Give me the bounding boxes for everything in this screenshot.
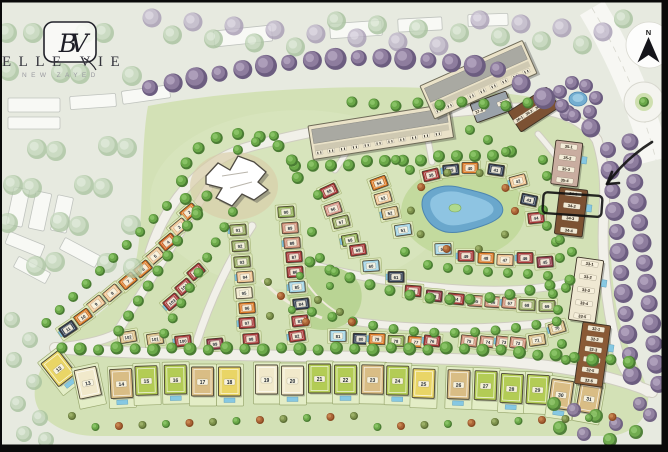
tree [413, 98, 424, 109]
tree [581, 119, 600, 138]
tree [22, 332, 38, 348]
tree [512, 74, 531, 93]
tree [143, 9, 162, 28]
tree [168, 313, 178, 323]
villa-plot-23: 23 [359, 362, 387, 404]
tree [476, 169, 484, 177]
screenshot-frame: 2345678910111051041031021011009998979695… [0, 0, 668, 452]
tree [542, 171, 552, 181]
tree [557, 339, 567, 349]
plot-47: 47 [494, 252, 516, 268]
tree [561, 355, 571, 365]
plot-92: 92 [229, 238, 251, 254]
tree [623, 356, 636, 369]
villa-plot-15: 15 [133, 363, 161, 406]
tree [468, 419, 476, 427]
tree [110, 342, 123, 355]
svg-text:14: 14 [118, 382, 124, 388]
tree [135, 227, 145, 237]
plot-95: 95 [233, 285, 255, 301]
tree [421, 421, 429, 429]
tree [74, 343, 87, 356]
tree [153, 266, 164, 277]
tree [618, 325, 637, 344]
tree [307, 227, 317, 237]
tree [542, 221, 552, 231]
svg-text:15: 15 [144, 379, 150, 385]
tree [266, 21, 285, 40]
tree [512, 15, 531, 34]
tree [368, 16, 387, 35]
tree [266, 312, 274, 320]
tree [26, 256, 46, 276]
tree [555, 235, 565, 245]
tree [548, 289, 558, 299]
tree [501, 147, 511, 157]
tree [543, 271, 553, 281]
plot-51: 51 [392, 221, 415, 239]
tree [117, 138, 137, 158]
tree [108, 253, 118, 263]
tree [330, 267, 340, 277]
tree [594, 23, 613, 42]
tree [440, 342, 453, 355]
tree [553, 421, 567, 435]
plot-68: 68 [516, 297, 538, 313]
tree [491, 326, 501, 336]
tree [23, 23, 43, 43]
logo-title: ELLE VIE [2, 54, 127, 70]
tree [423, 260, 433, 270]
tree [286, 155, 298, 167]
tree [256, 416, 264, 424]
tree [194, 268, 204, 278]
tree [642, 314, 661, 333]
faded-building [8, 98, 60, 112]
svg-text:80: 80 [359, 337, 365, 342]
svg-text:26: 26 [456, 383, 462, 389]
tree [307, 25, 326, 44]
tree [532, 32, 551, 51]
tree [313, 345, 324, 356]
svg-text:48: 48 [484, 256, 490, 261]
tree [172, 236, 183, 247]
tree [465, 294, 476, 305]
tree [41, 318, 51, 328]
tree [314, 296, 322, 304]
svg-text:78: 78 [394, 339, 400, 344]
tree [405, 165, 415, 175]
tree [303, 51, 322, 70]
tree [369, 99, 380, 110]
tree [277, 292, 285, 300]
tree [115, 422, 123, 430]
tree [327, 312, 337, 322]
tree [628, 193, 647, 212]
tree [162, 201, 172, 211]
tree [186, 419, 194, 427]
svg-text:101: 101 [151, 336, 159, 342]
tree [585, 414, 593, 422]
plot-59: 59 [347, 241, 370, 259]
tree [589, 91, 603, 105]
villa-plot-16: 16 [162, 362, 190, 404]
tree [269, 131, 279, 141]
tree [386, 343, 397, 354]
tree [445, 294, 456, 305]
tree [405, 290, 416, 301]
tree [443, 263, 453, 273]
tree [185, 67, 207, 89]
tree [513, 346, 526, 359]
plot-96: 96 [236, 300, 258, 316]
tree [180, 193, 192, 205]
tree [315, 253, 325, 263]
tree [255, 55, 277, 77]
tree [184, 343, 197, 356]
tree [74, 175, 94, 195]
tree [280, 415, 288, 423]
tree [553, 305, 563, 315]
tree [610, 243, 629, 262]
tree [55, 305, 65, 315]
tree [264, 278, 272, 286]
tree [122, 240, 132, 250]
tree [633, 397, 647, 411]
villa-plot-19: 19 [254, 362, 281, 404]
tree [631, 214, 648, 231]
tree [391, 155, 401, 165]
tree [204, 30, 223, 49]
tree [450, 24, 469, 43]
villa-plot-22: 22 [333, 362, 360, 404]
tree [303, 414, 311, 422]
villa-plot-26: 26 [445, 367, 473, 410]
tree [391, 101, 402, 112]
tree [385, 285, 396, 296]
plot-61: 61 [386, 270, 407, 285]
tree [479, 99, 490, 110]
tree [325, 48, 347, 70]
tree [643, 408, 657, 422]
faded-building [8, 117, 60, 129]
tree [613, 265, 629, 281]
svg-text:24: 24 [395, 379, 401, 385]
tree [394, 48, 416, 70]
tree [22, 178, 42, 198]
tree [10, 396, 26, 412]
tree [292, 172, 304, 184]
villa-plot-20: 20 [280, 363, 307, 405]
tree [397, 422, 405, 430]
tree [523, 269, 533, 279]
tree [16, 426, 32, 442]
svg-text:35-4: 35-4 [560, 177, 569, 183]
tree [143, 281, 154, 292]
tree [327, 413, 335, 421]
plot-85: 85 [286, 279, 308, 295]
pool [170, 396, 181, 401]
tree [123, 258, 143, 278]
tree [288, 306, 296, 314]
tree [415, 155, 427, 167]
tree [361, 155, 373, 167]
plot-87: 87 [283, 249, 305, 265]
tree [579, 79, 593, 93]
tree [567, 247, 577, 257]
tree [130, 344, 141, 355]
tree [368, 321, 378, 331]
tree [257, 344, 270, 357]
tree [181, 157, 193, 169]
svg-text:34-2: 34-2 [568, 203, 577, 209]
tree [491, 418, 499, 426]
tree [604, 183, 620, 199]
plot-39: 39 [440, 161, 462, 178]
tree [470, 327, 480, 337]
plot-91: 91 [227, 222, 249, 238]
tree [202, 191, 213, 202]
tree [220, 342, 233, 355]
tree [219, 222, 229, 232]
tree [400, 247, 410, 257]
tree [92, 423, 100, 431]
tree [457, 97, 468, 108]
tree [639, 97, 649, 107]
tree [367, 344, 380, 357]
villa-plot-17: 17 [190, 364, 217, 406]
tree [567, 109, 581, 123]
tree [483, 135, 493, 145]
tree [46, 141, 66, 161]
svg-text:46: 46 [523, 256, 528, 261]
tree [45, 252, 65, 272]
tree [82, 279, 92, 289]
svg-text:16: 16 [173, 378, 179, 384]
tree [350, 412, 358, 420]
tree [552, 317, 562, 327]
tree [442, 53, 461, 72]
tree [142, 80, 158, 96]
tree [326, 282, 334, 290]
tree [606, 354, 617, 365]
tree [430, 37, 449, 56]
tree [451, 150, 463, 162]
svg-text:28: 28 [509, 387, 515, 393]
svg-text:61: 61 [394, 275, 399, 280]
svg-text:35-2: 35-2 [563, 155, 572, 161]
tree [351, 50, 367, 66]
tree [225, 17, 244, 36]
tree [26, 374, 42, 390]
pool [601, 280, 607, 288]
pool [224, 398, 235, 403]
tree [423, 345, 434, 356]
plot-41: 41 [485, 161, 508, 179]
tree [444, 169, 452, 177]
tree [93, 178, 113, 198]
tree [538, 155, 548, 165]
plot-93: 93 [231, 254, 253, 270]
tree [93, 345, 104, 356]
svg-text:25: 25 [421, 382, 427, 388]
tree [636, 255, 653, 272]
pool [608, 344, 614, 352]
plot-94: 94 [234, 269, 256, 285]
tree [444, 420, 452, 428]
tree [407, 207, 415, 215]
svg-text:81: 81 [336, 334, 341, 339]
tree [565, 76, 579, 90]
svg-text:20: 20 [290, 379, 296, 385]
tree [459, 344, 470, 355]
svg-text:29: 29 [535, 388, 541, 394]
tree [327, 12, 346, 31]
tree [463, 265, 473, 275]
tree [349, 344, 360, 355]
tree [325, 160, 337, 172]
tree [240, 344, 251, 355]
tree [618, 306, 634, 322]
villa-plot-28: 28 [497, 370, 526, 413]
tree [191, 208, 203, 220]
tree [163, 26, 182, 45]
tree [496, 344, 507, 355]
tree [330, 342, 343, 355]
tree [176, 298, 186, 308]
tree [162, 420, 170, 428]
tree [633, 234, 652, 253]
tree [531, 320, 541, 330]
tree [533, 87, 555, 109]
tree [185, 283, 195, 293]
tree [417, 183, 425, 191]
tree [212, 66, 228, 82]
villa-plot-24: 24 [384, 363, 412, 405]
tree [476, 344, 489, 357]
tree [149, 214, 159, 224]
tree [389, 324, 399, 334]
tree [538, 416, 546, 424]
tree [555, 253, 565, 263]
tree [50, 212, 70, 232]
tree [211, 237, 221, 247]
tree [505, 289, 516, 300]
tree [232, 128, 244, 140]
tree [348, 318, 356, 326]
tree [605, 202, 624, 221]
svg-text:21: 21 [317, 377, 323, 383]
tree [365, 279, 376, 290]
tree [3, 175, 23, 195]
tree [490, 62, 506, 78]
pool [287, 397, 298, 402]
tree [425, 293, 436, 304]
tree [307, 160, 319, 172]
villa-plot-27: 27 [472, 368, 500, 411]
tree [515, 417, 523, 425]
plot-60: 60 [360, 258, 382, 274]
tree [4, 312, 20, 328]
svg-text:40: 40 [468, 166, 473, 171]
tree [164, 74, 183, 93]
tree [561, 283, 571, 293]
tree [245, 34, 264, 53]
tree [409, 326, 419, 336]
plot-45: 45 [534, 254, 556, 270]
tree [286, 38, 305, 57]
tree [550, 348, 563, 361]
tree [523, 98, 534, 109]
tree [293, 343, 306, 356]
tree [553, 85, 567, 99]
tree [503, 268, 513, 278]
plot-89: 89 [279, 220, 301, 236]
tree [609, 413, 617, 421]
svg-text:47: 47 [503, 258, 509, 263]
tree [68, 412, 76, 420]
tree [373, 49, 392, 68]
tree [123, 311, 134, 322]
tree [409, 20, 428, 39]
tree [209, 418, 217, 426]
tree [305, 257, 316, 268]
plot-81: 81 [328, 329, 349, 344]
tree [176, 175, 188, 187]
svg-text:35-3: 35-3 [562, 166, 571, 172]
pool [505, 405, 516, 410]
tree [511, 323, 521, 333]
svg-text:22: 22 [343, 378, 349, 384]
villa-plot-18: 18 [217, 364, 244, 406]
svg-text:35-1: 35-1 [565, 144, 574, 150]
tree [251, 137, 261, 147]
tree [345, 272, 356, 283]
tree [475, 245, 483, 253]
tree [233, 60, 252, 79]
tree [379, 155, 391, 167]
tree [420, 53, 436, 69]
tree [555, 99, 569, 113]
tree [336, 308, 344, 316]
tree [501, 101, 512, 112]
tree [629, 425, 643, 439]
tree [435, 100, 446, 111]
pool [452, 401, 463, 406]
tree [626, 174, 643, 191]
svg-text:17: 17 [200, 380, 206, 386]
tree [469, 150, 481, 162]
plot-71: 71 [526, 331, 549, 349]
svg-text:68: 68 [525, 303, 531, 308]
tree [511, 207, 519, 215]
tree [296, 272, 304, 280]
tree [98, 136, 118, 156]
tree [302, 318, 310, 326]
pool [581, 157, 587, 165]
tree [637, 274, 656, 293]
tree [57, 343, 68, 354]
tree [483, 267, 493, 277]
svg-text:27: 27 [483, 384, 489, 390]
tree [586, 354, 599, 367]
tree [228, 207, 238, 217]
tree [487, 150, 499, 162]
tree [471, 11, 490, 30]
tree [276, 343, 287, 354]
tree [313, 190, 323, 200]
tree [69, 216, 89, 236]
